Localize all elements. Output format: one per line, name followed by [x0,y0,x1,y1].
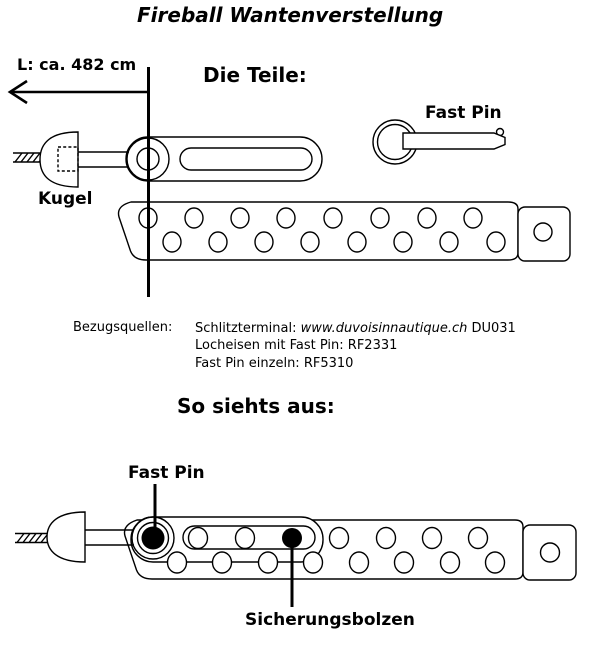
slot-terminal-drawing [78,137,322,181]
assembly-kugel-dome [47,512,85,562]
sicherungsbolzen-label: Sicherungsbolzen [245,610,415,630]
sources-heading: Bezugsquellen: [73,320,172,335]
assembly-wire-icon [15,534,47,543]
fast-pin-assembly-label: Fast Pin [128,463,205,483]
length-dimension-arrow [10,67,149,297]
page-title: Fireball Wantenverstellung [137,3,443,27]
strip-outline [119,202,519,260]
sources-list: Schlitzterminal: www.duvoisinnautique.ch… [195,320,516,372]
assembly-section-heading: So siehts aus: [177,394,335,418]
fast-pin-marker [142,527,165,550]
kugel-part-drawing [13,132,78,187]
slot-hole [189,528,208,549]
fast-pin-part-label: Fast Pin [425,103,502,123]
assembly-strip-tab [523,525,576,580]
sicherungsbolzen-marker [282,528,302,548]
source-line-locheisen: Locheisen mit Fast Pin: RF2331 [195,337,516,354]
kugel-label: Kugel [38,189,93,209]
length-dimension-label: L: ca. 482 cm [17,55,136,74]
strip-tab [518,207,570,261]
slot-hole [236,528,255,549]
kugel-dome [40,132,78,187]
fast-pin-body [403,133,505,149]
locheisen-drawing [119,202,571,261]
source-url: www.duvoisinnautique.ch [301,321,468,336]
terminal-rod [78,152,129,167]
source-line-fastpin: Fast Pin einzeln: RF5310 [195,355,516,372]
source-line-schlitzterminal: Schlitzterminal: www.duvoisinnautique.ch… [195,320,516,337]
diagram-canvas: Fireball Wantenverstellung L: ca. 482 cm… [0,0,615,648]
parts-section-heading: Die Teile: [203,63,307,87]
assembly-drawing [15,484,576,607]
fast-pin-part-drawing [373,120,505,164]
